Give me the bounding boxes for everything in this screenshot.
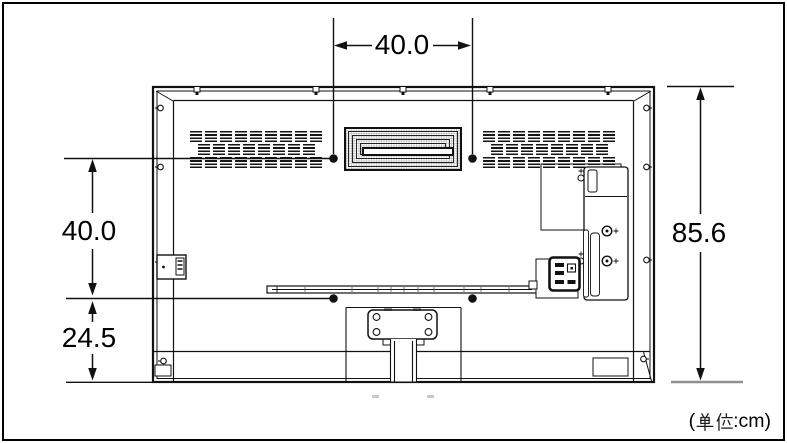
vent-slot [273,144,285,155]
left-side-connector-box [157,255,186,279]
vent-slot [506,144,518,155]
vent-slot [220,157,232,168]
stand-screw-icon [373,329,380,336]
stand-mount-plate [368,310,437,339]
vent-slot [498,157,510,168]
av-connector [550,258,580,291]
vent-slot [280,157,292,168]
dimension-lines [64,18,743,382]
stand [346,308,461,399]
vent-slot [243,144,255,155]
vent-slot [513,131,525,142]
vesa-hole-icons [329,154,477,303]
image-border [2,2,785,441]
dimension-diagram: 40.0 40.0 24.5 85.6 ( 単位 :cm) [0,0,787,443]
vent-slot [265,131,277,142]
vent-slot [483,157,495,168]
card-slot [588,170,597,192]
vent-slot [198,144,210,155]
vent-slot [581,144,593,155]
vent-slot [596,144,608,155]
vent-slot [498,131,510,142]
vent-slot [543,131,555,142]
dim-left-lower-label: 24.5 [62,324,117,352]
diagram-linework [0,0,787,443]
vent-slot [303,144,315,155]
speaker-bar [267,286,537,293]
vent-slot [265,157,277,168]
vent-slot [295,131,307,142]
vent-slot [213,144,225,155]
dim-left-upper-label: 40.0 [62,217,117,245]
antenna-terminal-icon [602,256,618,266]
dim-top-width-label: 40.0 [375,31,430,59]
vent-slot [573,157,585,168]
vent-slot [603,131,615,142]
stand-neck [391,339,417,382]
unit-kanji-i-glyph [715,413,733,431]
vent-slot [228,144,240,155]
vent-slot [536,144,548,155]
vent-slot [288,144,300,155]
stand-screw-icon [425,329,432,336]
terminal-sub-box [536,259,578,298]
unit-kanji-tan-glyph [696,413,714,431]
vent-slot [566,144,578,155]
unit-note-open: ( [689,408,696,435]
vent-slot [250,131,262,142]
stand-screw-icon [425,314,432,321]
vent-slot [483,131,495,142]
vent-slot [205,157,217,168]
vent-slot [528,131,540,142]
vent-slot [310,157,322,168]
vent-slot [190,131,202,142]
label-plate-left [155,365,171,376]
vent-slot [603,157,615,168]
dim-right-height-label: 85.6 [672,219,727,247]
unit-note: ( 単位 :cm) [689,408,771,435]
vent-slot [235,157,247,168]
vent-slot [190,157,202,168]
vent-slot [551,144,563,155]
vent-slot [295,157,307,168]
handle-slot [362,147,454,156]
handle-recess [344,127,462,171]
panel-screw-icon [578,175,584,181]
terminal-panel [529,164,628,300]
vent-slot [220,131,232,142]
vent-slot [573,131,585,142]
vent-slot [235,131,247,142]
vent-slot [258,144,270,155]
vent-slot [588,157,600,168]
vent-slot [588,131,600,142]
vent-slot [491,144,503,155]
vent-slot [528,157,540,168]
top-screw-icons [194,87,611,95]
vent-slot [513,157,525,168]
vent-slot [543,157,555,168]
vent-slot [558,131,570,142]
vent-slot [521,144,533,155]
unit-note-suffix: :cm) [733,408,771,435]
stand-screw-icon [373,314,380,321]
panel-screw-icon [578,258,584,264]
vent-slot [558,157,570,168]
vent-slot [310,131,322,142]
vent-slot [250,157,262,168]
vent-slot [205,131,217,142]
antenna-terminal-icon [602,226,618,236]
label-plate-right [593,358,628,376]
vent-slot [280,131,292,142]
